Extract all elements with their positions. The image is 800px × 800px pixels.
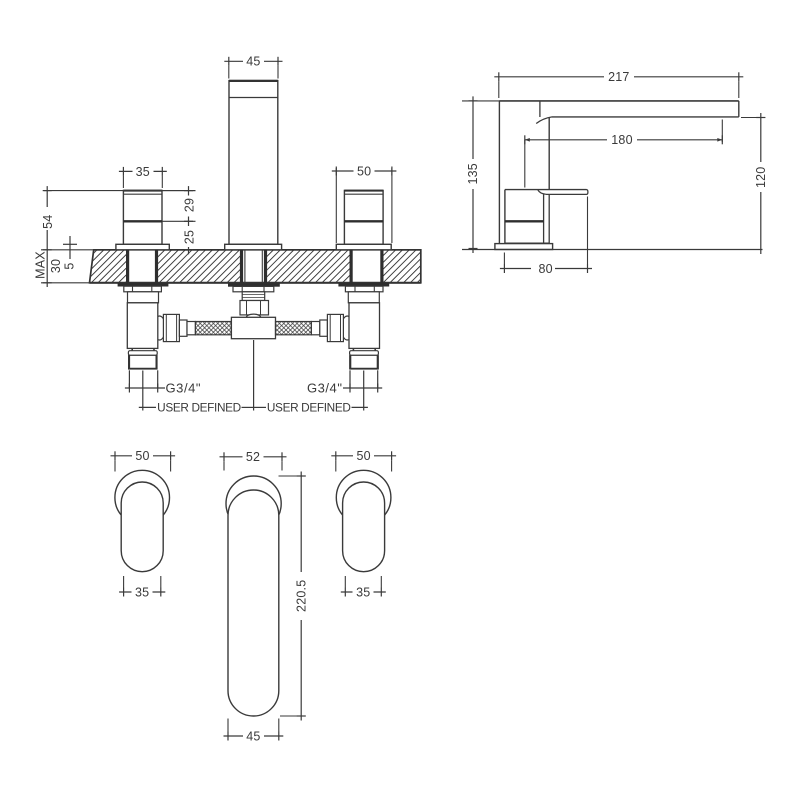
svg-text:50: 50 bbox=[135, 449, 149, 463]
svg-text:29: 29 bbox=[183, 198, 197, 212]
svg-text:180: 180 bbox=[611, 133, 632, 147]
svg-text:35: 35 bbox=[136, 165, 150, 179]
svg-text:52: 52 bbox=[246, 450, 260, 464]
svg-text:220.5: 220.5 bbox=[294, 580, 308, 612]
svg-text:45: 45 bbox=[246, 55, 260, 69]
svg-text:25: 25 bbox=[183, 230, 197, 244]
svg-text:50: 50 bbox=[357, 164, 371, 178]
svg-text:USER DEFINED: USER DEFINED bbox=[267, 400, 351, 414]
svg-text:5: 5 bbox=[63, 262, 77, 269]
svg-text:54: 54 bbox=[41, 215, 55, 229]
svg-text:USER DEFINED: USER DEFINED bbox=[157, 400, 241, 414]
svg-text:G3/4": G3/4" bbox=[166, 381, 202, 396]
svg-text:80: 80 bbox=[538, 262, 552, 276]
svg-text:50: 50 bbox=[357, 449, 371, 463]
svg-text:135: 135 bbox=[466, 163, 480, 184]
svg-text:120: 120 bbox=[754, 167, 768, 188]
svg-text:45: 45 bbox=[246, 730, 260, 744]
svg-text:MAX: MAX bbox=[33, 251, 47, 279]
svg-text:35: 35 bbox=[356, 585, 370, 599]
svg-text:30: 30 bbox=[49, 259, 63, 273]
svg-text:35: 35 bbox=[135, 585, 149, 599]
svg-text:G3/4": G3/4" bbox=[307, 381, 343, 396]
svg-text:217: 217 bbox=[608, 70, 629, 84]
